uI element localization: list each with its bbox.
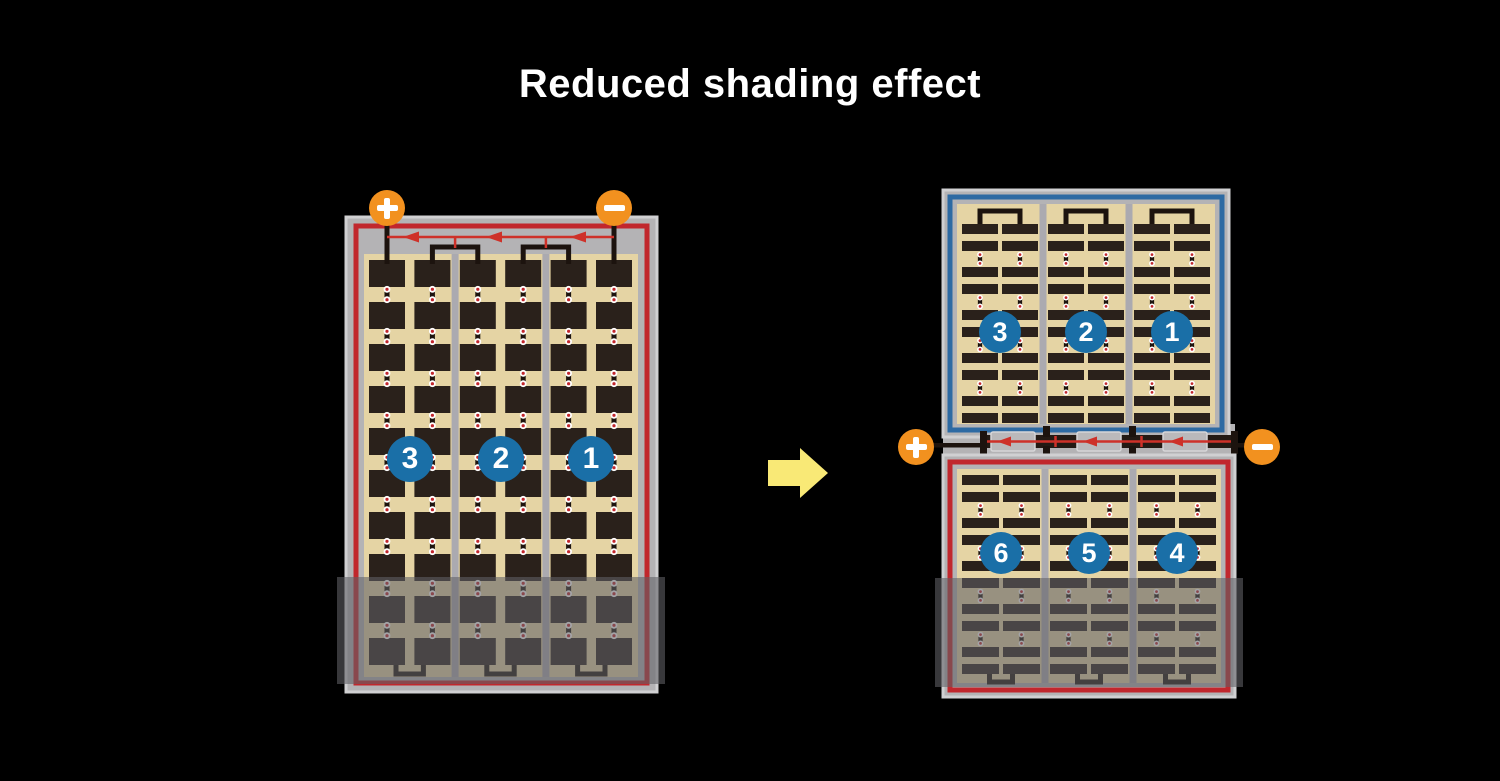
half-cell-bar xyxy=(1088,396,1124,406)
connector-dot-center xyxy=(476,340,479,343)
half-cell-bar xyxy=(1002,241,1038,251)
string-divider xyxy=(1040,204,1047,424)
connector-dot-center xyxy=(1020,513,1023,516)
connector-dot-center xyxy=(1019,253,1022,256)
connector-dot-center xyxy=(979,504,982,507)
half-cell-bar xyxy=(1134,267,1170,277)
half-cell-bar xyxy=(1179,492,1216,502)
connector-dot-center xyxy=(567,382,570,385)
connector-dot-center xyxy=(522,424,525,427)
half-cell-bar xyxy=(1134,370,1170,380)
connector-dot-center xyxy=(476,298,479,301)
solar-cell xyxy=(414,344,450,371)
half-cell-bar xyxy=(1138,518,1175,528)
connector-dot-center xyxy=(567,424,570,427)
connector-dot-center xyxy=(979,348,982,351)
half-cell-bar xyxy=(1002,413,1038,423)
half-cell-bar xyxy=(1088,224,1124,234)
half-cell-bar xyxy=(1048,353,1084,363)
connector-dot-center xyxy=(612,508,615,511)
half-cell-bar xyxy=(1174,241,1210,251)
half-cell-bar xyxy=(1088,370,1124,380)
half-cell-bar xyxy=(1048,241,1084,251)
solar-cell xyxy=(505,386,541,413)
connector-dot-center xyxy=(979,391,982,394)
solar-cell xyxy=(369,344,405,371)
right-halfcut-panel xyxy=(895,184,1295,704)
solar-cell xyxy=(551,344,587,371)
connector-dot-center xyxy=(979,513,982,516)
half-cell-bar xyxy=(962,492,999,502)
solar-cell xyxy=(596,260,632,287)
half-cell-bar xyxy=(1048,267,1084,277)
solar-cell xyxy=(369,302,405,329)
connector-dot-center xyxy=(476,414,479,417)
half-cell-bar xyxy=(962,241,998,251)
connector-dot-center xyxy=(612,382,615,385)
connector-dot-center xyxy=(1019,262,1022,265)
half-cell-bar xyxy=(1002,353,1038,363)
half-cell-bar xyxy=(1179,518,1216,528)
connector-dot-center xyxy=(431,330,434,333)
half-cell-bar xyxy=(1088,241,1124,251)
connector-dot-center xyxy=(567,372,570,375)
connector-dot-center xyxy=(1019,296,1022,299)
connector-dot-center xyxy=(385,298,388,301)
connector-dot-center xyxy=(1065,391,1068,394)
transition-arrow-shape xyxy=(768,448,828,498)
positive-lead-wire xyxy=(933,443,980,448)
connector-dot-center xyxy=(612,424,615,427)
solar-cell xyxy=(505,512,541,539)
diagram-title: Reduced shading effect xyxy=(0,62,1500,107)
solar-cell xyxy=(414,260,450,287)
connector-dot-center xyxy=(431,288,434,291)
connector-dot-center xyxy=(476,498,479,501)
connector-dot-center xyxy=(476,424,479,427)
connector-dot-center xyxy=(476,330,479,333)
connector-dot-center xyxy=(476,550,479,553)
solar-cell xyxy=(460,386,496,413)
solar-cell xyxy=(551,512,587,539)
connector-dot-center xyxy=(612,550,615,553)
connector-dot-center xyxy=(1105,296,1108,299)
connector-dot-center xyxy=(431,340,434,343)
connector-dot-center xyxy=(567,508,570,511)
string-badge: 5 xyxy=(1068,532,1110,574)
connector-dot-center xyxy=(385,550,388,553)
solar-cell xyxy=(596,554,632,581)
connector-dot-center xyxy=(1155,504,1158,507)
solar-cell xyxy=(596,302,632,329)
connector-dot-center xyxy=(522,540,525,543)
solar-cell xyxy=(505,344,541,371)
connector-dot-center xyxy=(385,330,388,333)
half-cell-bar xyxy=(1088,284,1124,294)
half-cell-bar xyxy=(1002,284,1038,294)
string-badge: 3 xyxy=(387,436,433,482)
connector-dot-center xyxy=(979,262,982,265)
connector-dot-center xyxy=(612,540,615,543)
bus-end-bar xyxy=(1231,431,1238,454)
solar-cell xyxy=(369,386,405,413)
bus-end-bar xyxy=(980,431,987,454)
half-cell-bar xyxy=(962,370,998,380)
connector-dot-center xyxy=(431,382,434,385)
connector-dot-center xyxy=(1196,504,1199,507)
solar-cell xyxy=(460,344,496,371)
half-cell-bar xyxy=(962,518,999,528)
connector-dot-center xyxy=(1105,253,1108,256)
half-cell-bar xyxy=(1050,492,1087,502)
connector-dot-center xyxy=(1151,348,1154,351)
half-cell-bar xyxy=(1003,518,1040,528)
half-cell-bar xyxy=(1050,518,1087,528)
connector-dot-center xyxy=(522,498,525,501)
connector-dot-center xyxy=(1151,262,1154,265)
solar-cell xyxy=(505,554,541,581)
half-cell-bar xyxy=(1134,224,1170,234)
connector-dot-center xyxy=(567,498,570,501)
connector-dot-center xyxy=(385,498,388,501)
connector-dot-center xyxy=(567,330,570,333)
half-cell-bar xyxy=(1174,370,1210,380)
connector-dot-center xyxy=(979,305,982,308)
half-cell-bar xyxy=(962,267,998,277)
connector-dot-center xyxy=(385,424,388,427)
connector-dot-center xyxy=(385,340,388,343)
connector-dot-center xyxy=(431,424,434,427)
connector-dot-center xyxy=(1151,305,1154,308)
half-cell-bar xyxy=(1174,224,1210,234)
connector-dot-center xyxy=(431,508,434,511)
connector-dot-center xyxy=(1065,305,1068,308)
half-cell-bar xyxy=(1134,413,1170,423)
solar-cell xyxy=(596,512,632,539)
half-cell-bar xyxy=(1134,284,1170,294)
connector-dot-center xyxy=(522,298,525,301)
connector-dot-center xyxy=(431,372,434,375)
connector-dot-center xyxy=(431,540,434,543)
connector-dot-center xyxy=(567,340,570,343)
half-cell-bar xyxy=(962,475,999,485)
solar-cell xyxy=(460,302,496,329)
solar-cell xyxy=(505,302,541,329)
string-tap-wire xyxy=(1129,426,1136,437)
right-panel-positive-terminal xyxy=(898,429,934,465)
half-cell-bar xyxy=(1091,518,1128,528)
connector-dot-center xyxy=(567,540,570,543)
connector-dot-center xyxy=(1105,382,1108,385)
connector-dot-center xyxy=(1191,262,1194,265)
connector-dot-center xyxy=(1065,348,1068,351)
connector-dot-center xyxy=(1020,504,1023,507)
connector-dot-center xyxy=(1065,253,1068,256)
string-badge: 2 xyxy=(478,436,524,482)
connector-dot-center xyxy=(612,298,615,301)
half-cell-bar xyxy=(1138,492,1175,502)
connector-dot-center xyxy=(1191,391,1194,394)
connector-dot-center xyxy=(612,372,615,375)
shading-overlay xyxy=(337,577,665,684)
half-cell-bar xyxy=(1174,413,1210,423)
half-cell-bar xyxy=(1048,413,1084,423)
half-cell-bar xyxy=(1002,370,1038,380)
solar-cell xyxy=(369,512,405,539)
connector-dot-center xyxy=(1105,262,1108,265)
connector-dot-center xyxy=(979,253,982,256)
connector-dot-center xyxy=(431,498,434,501)
connector-dot-center xyxy=(612,330,615,333)
solar-cell xyxy=(596,344,632,371)
connector-dot-center xyxy=(1151,382,1154,385)
half-cell-bar xyxy=(1050,475,1087,485)
transition-arrow-icon xyxy=(766,447,830,501)
solar-cell xyxy=(460,554,496,581)
connector-dot-center xyxy=(1191,382,1194,385)
connector-dot-center xyxy=(385,288,388,291)
half-cell-bar xyxy=(1091,475,1128,485)
connector-dot-center xyxy=(522,382,525,385)
half-cell-bar xyxy=(1134,396,1170,406)
connector-dot-center xyxy=(476,382,479,385)
connector-dot-center xyxy=(1019,348,1022,351)
half-cell-bar xyxy=(1048,370,1084,380)
connector-dot-center xyxy=(1191,253,1194,256)
solar-cell xyxy=(551,302,587,329)
connector-dot-center xyxy=(979,382,982,385)
connector-dot-center xyxy=(1108,513,1111,516)
connector-dot-center xyxy=(612,340,615,343)
connector-dot-center xyxy=(431,550,434,553)
connector-dot-center xyxy=(612,288,615,291)
connector-dot-center xyxy=(1108,504,1111,507)
connector-dot-center xyxy=(522,340,525,343)
solar-cell xyxy=(505,260,541,287)
shading-overlay xyxy=(935,578,1243,687)
connector-dot-center xyxy=(522,550,525,553)
string-badge: 1 xyxy=(1151,311,1193,353)
connector-dot-center xyxy=(1151,296,1154,299)
half-cell-bar xyxy=(962,224,998,234)
connector-dot-center xyxy=(385,414,388,417)
half-cell-bar xyxy=(962,284,998,294)
half-cell-bar xyxy=(1174,267,1210,277)
connector-dot-center xyxy=(385,508,388,511)
connector-dot-center xyxy=(1019,305,1022,308)
half-cell-bar xyxy=(1003,475,1040,485)
connector-dot-center xyxy=(979,296,982,299)
half-cell-bar xyxy=(1174,396,1210,406)
connector-dot-center xyxy=(522,330,525,333)
half-cell-bar xyxy=(1134,241,1170,251)
connector-dot-center xyxy=(385,382,388,385)
connector-dot-center xyxy=(1105,305,1108,308)
connector-dot-center xyxy=(476,508,479,511)
half-cell-bar xyxy=(1179,475,1216,485)
connector-dot-center xyxy=(522,372,525,375)
half-cell-bar xyxy=(1048,284,1084,294)
half-cell-bar xyxy=(1174,353,1210,363)
connector-dot-center xyxy=(522,508,525,511)
connector-dot-center xyxy=(385,372,388,375)
solar-cell xyxy=(414,302,450,329)
string-badge: 4 xyxy=(1156,532,1198,574)
solar-cell xyxy=(460,260,496,287)
connector-dot-center xyxy=(1196,513,1199,516)
half-cell-bar xyxy=(1002,224,1038,234)
string-tap-wire xyxy=(1043,426,1050,437)
solar-cell xyxy=(551,554,587,581)
solar-cell xyxy=(596,386,632,413)
connector-dot-center xyxy=(1067,504,1070,507)
solar-cell xyxy=(369,260,405,287)
solar-cell xyxy=(460,512,496,539)
connector-dot-center xyxy=(612,466,615,469)
connector-dot-center xyxy=(612,414,615,417)
connector-dot-center xyxy=(1105,391,1108,394)
half-cell-bar xyxy=(1091,492,1128,502)
connector-dot-center xyxy=(1105,348,1108,351)
connector-dot-center xyxy=(522,288,525,291)
connector-dot-center xyxy=(522,414,525,417)
connector-dot-center xyxy=(1191,296,1194,299)
solar-cell xyxy=(551,386,587,413)
string-badge: 6 xyxy=(980,532,1022,574)
connector-dot-center xyxy=(1019,382,1022,385)
half-cell-bar xyxy=(1003,492,1040,502)
right-panel-negative-terminal xyxy=(1244,429,1280,465)
connector-dot-center xyxy=(1065,262,1068,265)
connector-dot-center xyxy=(567,414,570,417)
half-cell-bar xyxy=(962,396,998,406)
connector-dot-center xyxy=(612,498,615,501)
half-cell-bar xyxy=(1088,413,1124,423)
half-cell-bar xyxy=(1088,353,1124,363)
connector-dot-center xyxy=(1155,513,1158,516)
string-badge: 2 xyxy=(1065,311,1107,353)
half-cell-bar xyxy=(1048,224,1084,234)
connector-dot-center xyxy=(1065,382,1068,385)
half-cell-bar xyxy=(962,353,998,363)
connector-dot-center xyxy=(1191,305,1194,308)
connector-dot-center xyxy=(385,540,388,543)
half-cell-bar xyxy=(1174,284,1210,294)
half-cell-bar xyxy=(1134,353,1170,363)
solar-cell xyxy=(551,260,587,287)
half-cell-bar xyxy=(1002,396,1038,406)
solar-cell xyxy=(414,512,450,539)
connector-dot-center xyxy=(476,372,479,375)
connector-dot-center xyxy=(1019,391,1022,394)
connector-dot-center xyxy=(431,414,434,417)
string-divider xyxy=(1126,204,1133,424)
connector-dot-center xyxy=(567,298,570,301)
connector-dot-center xyxy=(1151,253,1154,256)
string-badge: 1 xyxy=(568,436,614,482)
half-cell-bar xyxy=(1138,475,1175,485)
connector-dot-center xyxy=(567,550,570,553)
solar-cell xyxy=(369,554,405,581)
diagram-canvas: Reduced shading effect 3 2 1 3 2 1 6 xyxy=(0,0,1500,781)
connector-dot-center xyxy=(567,288,570,291)
half-cell-bar xyxy=(1002,267,1038,277)
left-panel-negative-terminal xyxy=(596,190,632,226)
string-badge: 3 xyxy=(979,311,1021,353)
connector-dot-center xyxy=(476,288,479,291)
half-cell-bar xyxy=(1048,396,1084,406)
connector-dot-center xyxy=(1065,296,1068,299)
half-cell-bar xyxy=(1088,267,1124,277)
solar-cell xyxy=(414,386,450,413)
left-panel-positive-terminal xyxy=(369,190,405,226)
connector-dot-center xyxy=(476,540,479,543)
connector-dot-center xyxy=(1151,391,1154,394)
half-cell-bar xyxy=(962,413,998,423)
solar-cell xyxy=(414,554,450,581)
connector-dot-center xyxy=(1191,348,1194,351)
connector-dot-center xyxy=(431,298,434,301)
connector-dot-center xyxy=(1067,513,1070,516)
